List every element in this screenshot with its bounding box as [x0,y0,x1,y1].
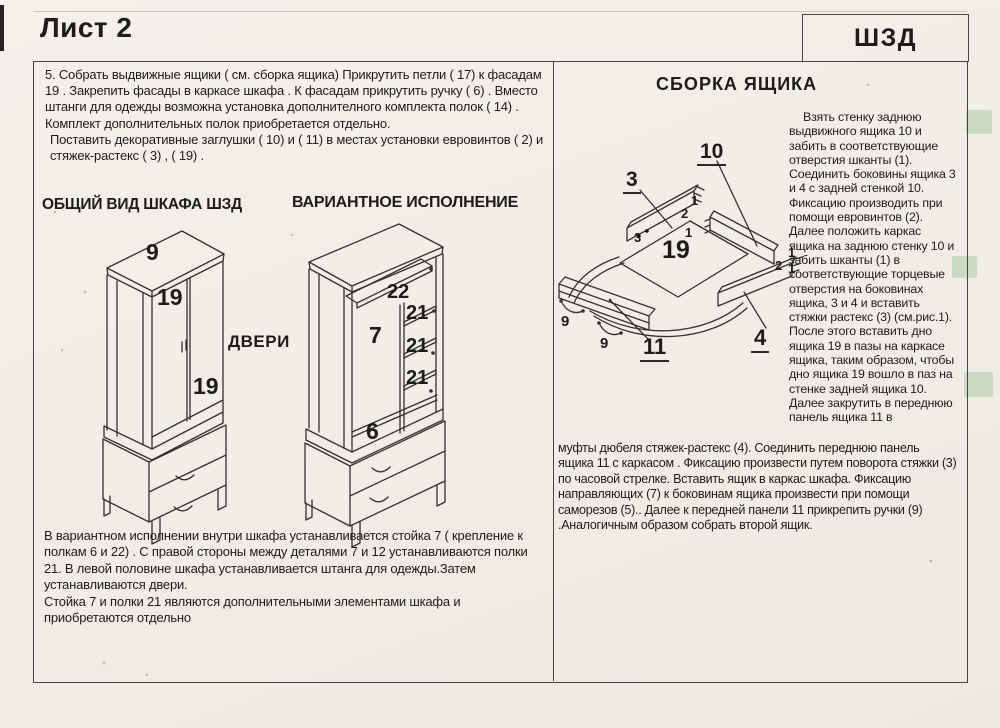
label-da-pin-left-2: 2 [681,207,688,220]
label-wg-left-door: 19 [157,286,183,309]
label-da-pin-left-1: 1 [691,194,698,207]
instruction-step-5-text: 5. Собрать выдвижные ящики ( см. сборка … [45,67,545,132]
model-code: ШЗД [854,24,917,53]
heading-drawer-assembly: СБОРКА ЯЩИКА [656,74,817,95]
green-highlight-mark-3 [964,372,993,397]
label-wg-right-door: 19 [193,375,219,398]
variant-note-1: В вариантном исполнении внутри шкафа уст… [44,528,546,594]
label-da-pin-left-3: 1 [685,226,692,239]
label-wg-top-panel: 9 [146,241,159,264]
heading-variant: ВАРИАНТНОЕ ИСПОЛНЕНИЕ [292,194,518,212]
instruction-step-5-plugs: Поставить декоративные заглушки ( 10) и … [45,132,545,164]
label-da-hole-left: 3 [634,231,641,244]
label-wv-shelf-3: 21 [406,368,428,388]
label-wv-shelf-2: 21 [406,336,428,356]
label-da-handle-2: 9 [600,336,608,351]
header-top-hairline [33,11,967,12]
column-divider-line [553,61,554,681]
label-da-side-left: 3 [623,169,641,194]
instruction-step-5: 5. Собрать выдвижные ящики ( см. сборка … [45,67,545,164]
sheet-title: Лист 2 [40,12,133,44]
label-wv-top-shelf: 22 [387,282,409,302]
label-da-pin-right-1: 1 [788,246,795,259]
label-wv-bottom-shelf: 6 [366,420,379,443]
label-da-pin-right-2: 2 [775,259,782,272]
label-wv-stand: 7 [369,324,382,347]
label-da-bottom-panel: 19 [662,238,690,263]
label-da-handle-1: 9 [561,314,569,329]
label-da-back-wall: 10 [697,141,726,166]
scan-edge-artifact [0,5,4,51]
scanned-assembly-sheet: Лист 2 ШЗД 5. Собрать выдвижные ящики ( … [0,0,1000,728]
drawer-assembly-text: Взять стенку заднюю выдвижного ящика 10 … [789,110,959,425]
green-highlight-mark-1 [966,110,992,134]
label-doors: ДВЕРИ [228,333,290,350]
heading-general-view: ОБЩИЙ ВИД ШКАФА ШЗД [42,196,242,214]
label-da-pin-right-3: 1 [788,262,795,275]
label-da-front-panel: 11 [640,336,669,362]
label-da-side-right: 4 [751,327,769,353]
drawer-assembly-text-bottom: муфты дюбеля стяжек-растекс (4). Соедини… [558,441,958,533]
variant-note-2: Стойка 7 и полки 21 являются дополнитель… [44,594,546,627]
model-code-cell: ШЗД [802,14,969,62]
variant-note: В вариантном исполнении внутри шкафа уст… [44,528,546,626]
label-wv-shelf-1: 21 [406,303,428,323]
